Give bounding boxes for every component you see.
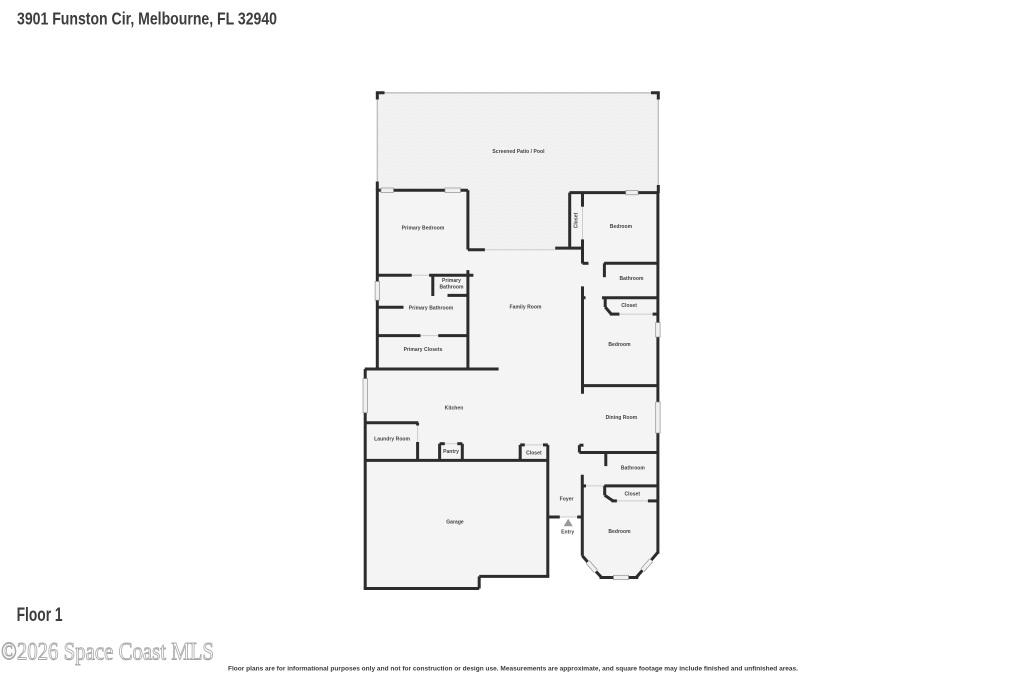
svg-text:Foyer: Foyer [560,496,574,502]
svg-text:Garage: Garage [446,519,464,525]
svg-text:Floor 1: Floor 1 [17,605,63,626]
svg-text:Closet: Closet [574,212,580,228]
svg-text:Primary Bathroom: Primary Bathroom [409,306,454,312]
svg-text:Primary: Primary [442,278,461,284]
svg-text:3901 Funston Cir, Melbourne, F: 3901 Funston Cir, Melbourne, FL 32940 [17,9,277,29]
svg-text:Screened Patio / Pool: Screened Patio / Pool [492,149,545,155]
svg-text:Bathroom: Bathroom [439,284,464,290]
svg-text:Closet: Closet [621,303,637,309]
svg-text:Kitchen: Kitchen [445,405,464,411]
svg-text:Closet: Closet [625,491,641,497]
svg-text:Bedroom: Bedroom [610,224,633,230]
svg-text:©2026 Space Coast MLS: ©2026 Space Coast MLS [1,637,214,666]
svg-text:Dining Room: Dining Room [606,415,638,421]
svg-text:Family Room: Family Room [510,305,542,311]
svg-text:Floor plans are for informatio: Floor plans are for informational purpos… [228,665,798,672]
svg-text:Primary Closets: Primary Closets [404,347,443,353]
svg-text:Pantry: Pantry [443,449,459,455]
svg-text:Primary Bedroom: Primary Bedroom [402,226,445,232]
svg-text:Entry: Entry [561,529,574,535]
svg-text:Bathroom: Bathroom [621,465,646,471]
svg-text:Bathroom: Bathroom [619,276,644,282]
svg-text:Bedroom: Bedroom [608,529,631,535]
svg-text:Bedroom: Bedroom [608,342,631,348]
svg-text:Closet: Closet [526,450,542,456]
svg-text:Laundry Room: Laundry Room [374,437,410,443]
